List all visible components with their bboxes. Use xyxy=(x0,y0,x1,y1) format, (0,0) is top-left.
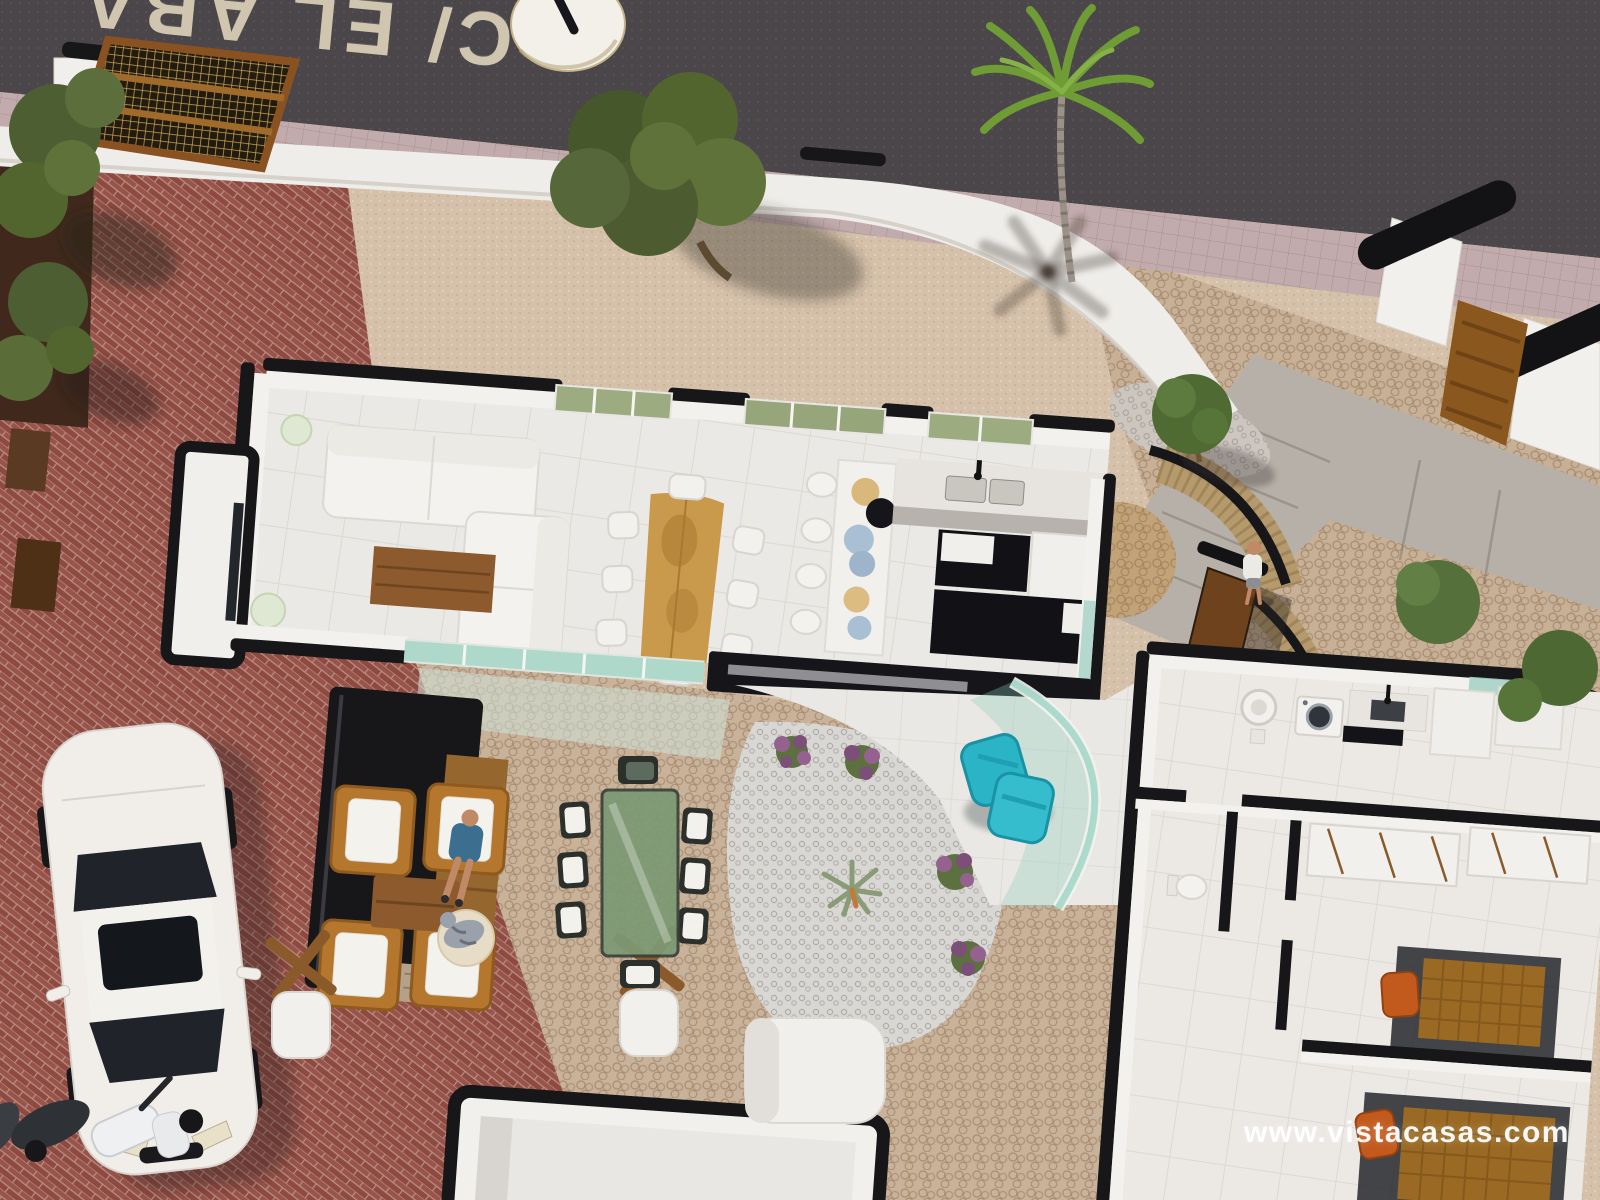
scene-base-svg xyxy=(0,0,1600,1200)
dog xyxy=(438,910,494,966)
shed-planter xyxy=(745,1018,885,1123)
orange-desk-chair xyxy=(1381,971,1420,1017)
washing-machine xyxy=(1295,696,1344,737)
outdoor-table xyxy=(602,790,678,956)
watermark: www.vistacasas.com xyxy=(1244,1116,1570,1150)
coffee-table xyxy=(370,546,496,613)
side-stool xyxy=(280,414,312,446)
scene: C/ EL ABA www.vistacasas.com xyxy=(0,0,1600,1200)
